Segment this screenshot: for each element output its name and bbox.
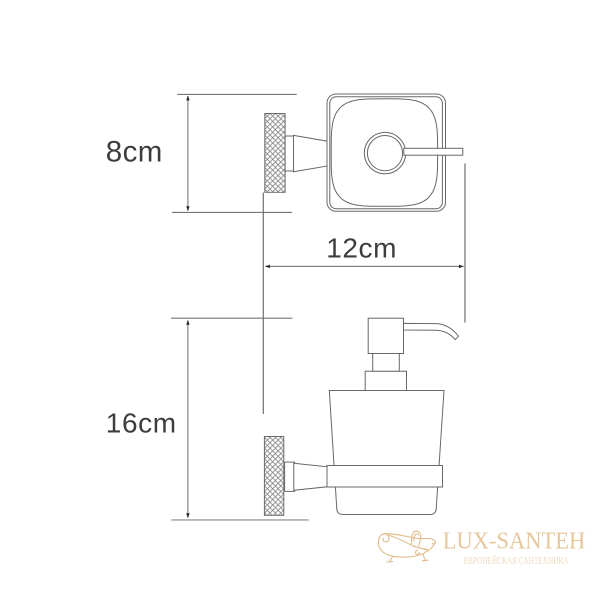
svg-text:8cm: 8cm bbox=[106, 135, 163, 168]
svg-text:16cm: 16cm bbox=[106, 408, 177, 439]
svg-text:12cm: 12cm bbox=[326, 233, 397, 264]
svg-text:LUX-SANTEH: LUX-SANTEH bbox=[443, 528, 586, 554]
svg-text:ЕВРОПЕЙСКАЯ САНТЕХНИКА: ЕВРОПЕЙСКАЯ САНТЕХНИКА bbox=[464, 555, 569, 567]
